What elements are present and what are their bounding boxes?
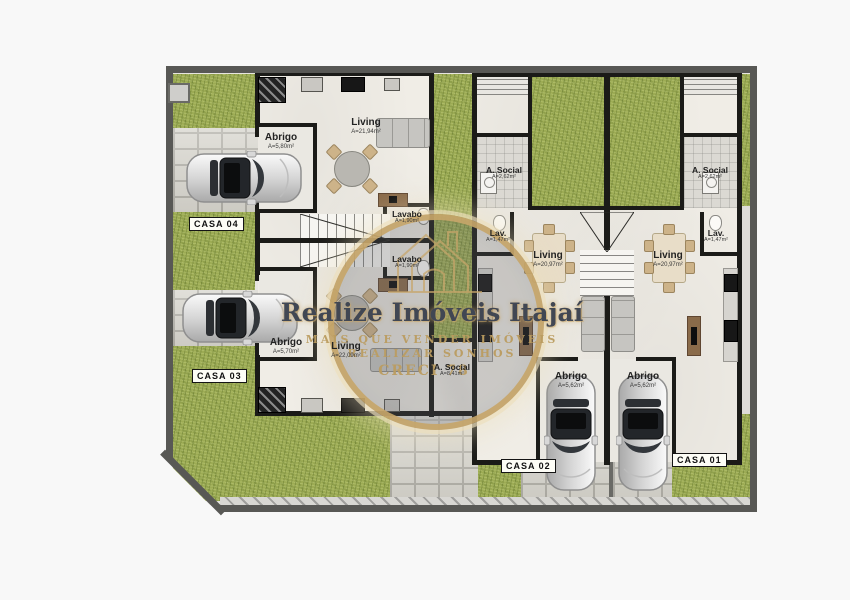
car-casa02 <box>544 373 598 493</box>
plot-boundary-left <box>166 66 173 458</box>
watermark-title: Realize Imóveis Itajaí <box>281 298 583 327</box>
wall <box>538 357 578 361</box>
wall <box>255 209 317 213</box>
cooktop-icon <box>341 77 365 92</box>
corner-cabinet-icon <box>258 77 286 103</box>
chair-icon <box>685 262 695 274</box>
wall <box>636 357 676 361</box>
room-label-casa01-lav: Lav. A=1,47m² <box>704 229 728 244</box>
room-label-casa01-living: Living A=20,97m² <box>653 251 683 268</box>
room-label-casa01-abrigo: Abrigo A=5,62m² <box>627 372 659 389</box>
oven-icon <box>301 398 323 413</box>
wall <box>684 133 737 137</box>
wall <box>528 206 608 210</box>
chair-icon <box>565 262 575 274</box>
chair-icon <box>685 240 695 252</box>
wall <box>680 77 684 210</box>
room-label-casa03-social: A. Social A=8,41m² <box>434 363 470 378</box>
floor-plan-stage: Abrigo A=5,80m² Living A=21,94m² Lavabo … <box>0 0 850 600</box>
sofa-casa02 <box>581 296 605 352</box>
gate-pillar <box>168 83 190 103</box>
room-label-casa03-abrigo: Abrigo A=5,70m² <box>270 338 302 355</box>
room-label-casa03-living: Living A=22,09m² <box>331 342 361 359</box>
room-label-casa02-lav: Lav. A=1,47m² <box>486 229 510 244</box>
oven-icon <box>301 77 323 92</box>
wall <box>255 357 317 361</box>
casa-tag-04: CASA 04 <box>189 217 244 231</box>
tv-cabinet-casa01 <box>687 316 701 356</box>
chair-icon <box>663 282 675 293</box>
wall <box>536 357 540 460</box>
wall <box>313 123 317 213</box>
entry-steps-casa02 <box>477 77 530 95</box>
plot-boundary-bottom <box>220 505 757 512</box>
plot-boundary-right <box>750 66 757 512</box>
casa-tag-03: CASA 03 <box>192 369 247 383</box>
room-label-casa02-abrigo: Abrigo A=5,62m² <box>555 372 587 389</box>
room-label-casa02-social: A. Social A=2,62m² <box>486 166 522 181</box>
sideboard-casa04 <box>378 193 408 207</box>
wall <box>255 343 259 357</box>
wall <box>255 267 317 271</box>
room-label-casa02-living: Living A=20,97m² <box>533 251 563 268</box>
wall <box>477 133 530 137</box>
plot-boundary-top <box>166 66 757 73</box>
sink-icon <box>384 78 400 91</box>
wall <box>700 252 737 256</box>
room-label-casa04-abrigo: Abrigo A=5,80m² <box>265 133 297 150</box>
chair-icon <box>663 224 675 235</box>
stairs-diagonal-lines <box>580 212 634 252</box>
stairs-right-building <box>580 250 634 296</box>
room-label-casa03-lavabo: Lavabo A=1,90m² <box>392 255 422 270</box>
wall <box>672 357 676 460</box>
wall <box>528 77 532 210</box>
wall <box>255 123 317 127</box>
room-label-casa04-living: Living A=21,94m² <box>351 118 381 135</box>
wall <box>255 123 259 137</box>
fridge-icon <box>724 274 738 292</box>
car-casa01 <box>616 373 670 493</box>
courtyard-casa01 <box>610 77 680 207</box>
corner-cabinet-icon <box>258 387 286 413</box>
chair-icon <box>543 224 555 235</box>
chair-icon <box>565 240 575 252</box>
watermark-tagline-2: REALIZAR SONHOS <box>348 347 517 360</box>
sofa-casa04 <box>376 118 430 148</box>
courtyard-casa02 <box>532 77 604 207</box>
car-casa04 <box>184 151 304 205</box>
stove-icon <box>724 320 738 342</box>
wall <box>255 267 259 281</box>
casa-tag-01: CASA 01 <box>672 453 727 467</box>
chair-icon <box>543 282 555 293</box>
wall <box>606 206 684 210</box>
room-label-casa04-lavabo: Lavabo A=1,90m² <box>392 210 422 225</box>
sofa-casa01 <box>611 296 635 352</box>
entry-steps-casa01 <box>684 77 737 95</box>
room-label-casa01-social: A. Social A=2,62m² <box>692 166 728 181</box>
casa-tag-02: CASA 02 <box>501 459 556 473</box>
